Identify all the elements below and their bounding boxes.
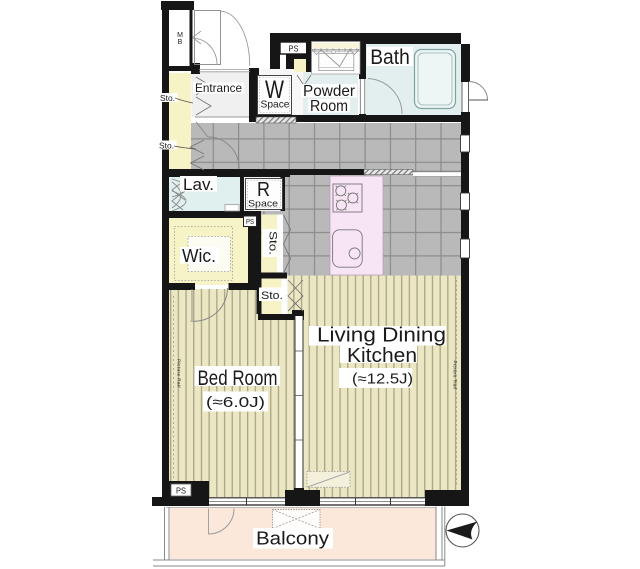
svg-text:Space: Space: [248, 199, 278, 210]
svg-text:(≈12.5J): (≈12.5J): [352, 372, 413, 388]
svg-text:Balcony: Balcony: [256, 529, 329, 549]
svg-text:Sto.: Sto.: [267, 231, 279, 255]
svg-text:Lav.: Lav.: [183, 175, 214, 194]
svg-text:Sto.: Sto.: [159, 142, 174, 151]
svg-text:Space: Space: [261, 99, 290, 111]
svg-text:(≈6.0J): (≈6.0J): [206, 394, 265, 411]
svg-text:Sto.: Sto.: [261, 290, 283, 302]
svg-text:PS: PS: [246, 217, 254, 226]
svg-text:Sto.: Sto.: [160, 94, 175, 103]
svg-text:Entrance: Entrance: [195, 81, 242, 95]
svg-text:Room: Room: [310, 98, 348, 115]
svg-text:Wic.: Wic.: [182, 246, 216, 266]
svg-text:Bed Room: Bed Room: [198, 367, 278, 390]
svg-text:Kitchen: Kitchen: [347, 345, 417, 367]
svg-text:B: B: [178, 39, 183, 46]
svg-text:Living Dining: Living Dining: [317, 325, 446, 347]
svg-text:Picture Rail: Picture Rail: [453, 360, 458, 389]
svg-text:M: M: [177, 32, 183, 39]
svg-text:PS: PS: [289, 44, 299, 54]
svg-text:Bath: Bath: [370, 46, 410, 69]
svg-text:PS: PS: [176, 486, 186, 496]
svg-text:Picture Rail: Picture Rail: [177, 359, 182, 388]
